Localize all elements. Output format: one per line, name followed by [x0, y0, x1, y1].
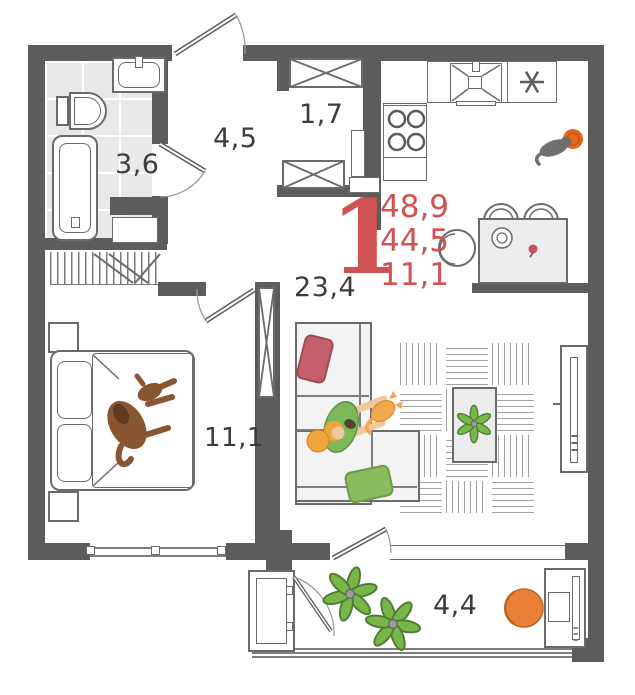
dog-icon [99, 376, 174, 464]
balcony-door [333, 529, 391, 558]
cat-icon [537, 129, 583, 164]
sink-cross-lines [452, 65, 500, 101]
area-stats: 48,9 44,5 11,1 [380, 190, 449, 292]
person-icon [307, 391, 403, 457]
balcony-sash [294, 577, 334, 636]
monitor-ticks [574, 628, 579, 640]
tv-bracket [553, 404, 577, 450]
stove-burners [389, 111, 424, 150]
office-chair-icon [505, 589, 543, 627]
room-area-label-bedroom: 11,1 [204, 423, 264, 453]
snowflake-icon [520, 72, 544, 93]
potted-plant-icon [456, 405, 492, 442]
kitchen-area: 11,1 [380, 258, 449, 292]
room-area-label-hallway: 4,5 [213, 123, 257, 154]
floor-plan: 3,6 4,5 1,7 23,4 11,1 4,4 1 48,9 44,5 11… [0, 0, 635, 695]
room-area-label-bathroom: 3,6 [115, 149, 159, 180]
living-area: 44,5 [380, 224, 449, 258]
plate-icon [492, 228, 512, 248]
apple-icon [529, 245, 538, 258]
potted-plant-icon [359, 589, 428, 659]
coat-rack-lines [94, 254, 160, 283]
room-area-label-balcony: 4,4 [433, 590, 477, 621]
total-area: 48,9 [380, 190, 449, 224]
room-area-label-storage: 1,7 [299, 99, 343, 130]
entrance-door [175, 15, 245, 54]
bathroom-door [160, 144, 205, 197]
bedroom-door [197, 289, 254, 321]
